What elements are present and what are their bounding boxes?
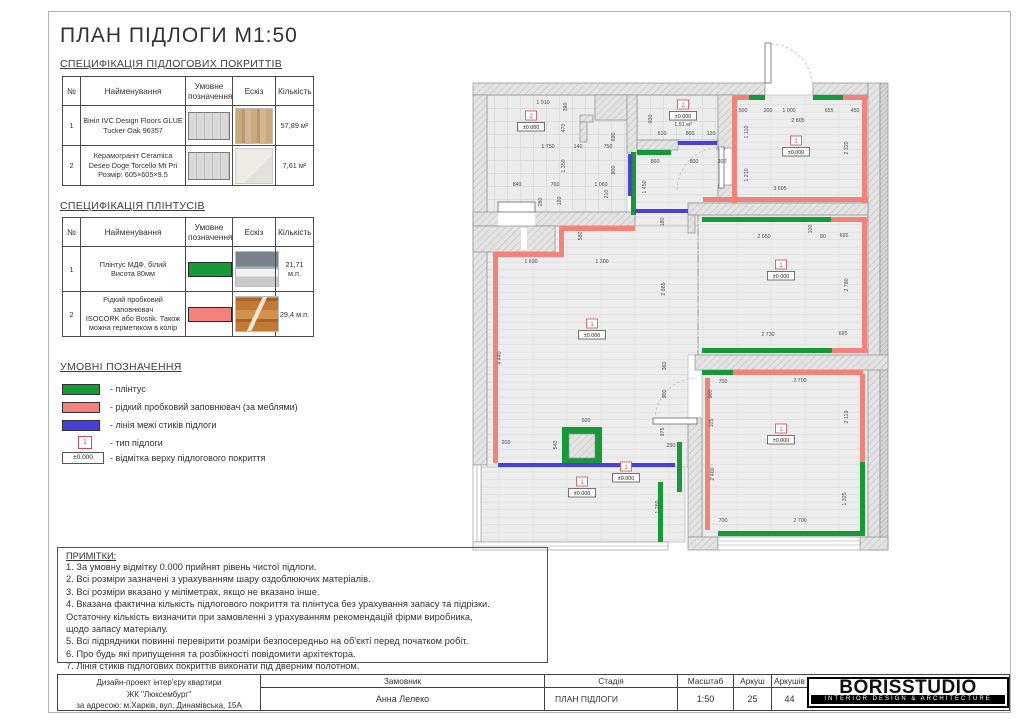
dim-label: 500 xyxy=(582,418,591,424)
elevation-value: ±0.000 xyxy=(618,476,634,482)
dim-label: 540 xyxy=(553,441,559,450)
dim-label: 1 450 xyxy=(642,180,648,193)
entry-door-leaf xyxy=(765,43,771,83)
note-line: 6. Про будь які припущення та розбіжност… xyxy=(66,648,539,660)
dim-label: 450 xyxy=(851,108,860,114)
legend-item-elevation: ±0.000 - відмітка верху підлогового покр… xyxy=(62,453,382,466)
dim-label: 610 xyxy=(658,131,667,137)
dim-label: 2 320 xyxy=(844,141,850,154)
spec-row: 1Вініл IVC Design Floors GLUE Tucker Oak… xyxy=(63,106,314,146)
entrance-door xyxy=(498,202,535,212)
dim-label: 100 xyxy=(808,225,814,234)
col-header: № xyxy=(63,77,81,106)
dim-label: 750 xyxy=(604,144,613,150)
dim-label: 1 260 xyxy=(655,500,661,513)
dim-label: 3 605 xyxy=(773,186,786,192)
col-header: Кількість xyxy=(276,218,314,247)
dim-label: 655 xyxy=(825,108,834,114)
legend-item-floor-type: 1 - тип підлоги xyxy=(62,438,382,451)
notes-lines: 1. За умовну відмітку 0.000 прийнят ріве… xyxy=(66,561,539,673)
dim-label: 1 300 xyxy=(595,259,608,265)
legend-heading: УМОВНІ ПОЗНАЧЕННЯ xyxy=(60,361,182,373)
logo-text: BORISSTUDIO xyxy=(809,679,1007,696)
dim-label: 2 700 xyxy=(793,518,806,524)
spec-row: 2Рідкий пробковий заповнювач ISOCORK або… xyxy=(63,292,314,337)
col-header: Кількість xyxy=(276,77,314,106)
dim-label: 80 xyxy=(820,234,826,240)
dim-label: 2 400 xyxy=(710,467,716,480)
dim-label: 930 xyxy=(648,115,654,124)
col-header: Найменування xyxy=(81,77,186,106)
client-label: Замовник xyxy=(261,675,544,688)
dim-label: 290 xyxy=(667,443,676,449)
dim-label: 700 xyxy=(719,518,728,524)
floor-areas xyxy=(481,95,868,542)
dim-label: 360 xyxy=(662,362,668,371)
legend-label: - відмітка верху підлогового покриття xyxy=(110,453,265,463)
dim-label: 2 805 xyxy=(791,118,804,124)
dim-label: 900 xyxy=(708,390,714,399)
dim-label: 1 060 xyxy=(594,182,607,188)
dim-label: 1 000 xyxy=(782,108,795,114)
dim-label: 800 xyxy=(611,166,617,175)
blue-joint-swatch xyxy=(62,420,100,431)
skirting-spec-table: №НайменуванняУмовне позначенняЕскізКільк… xyxy=(62,217,314,337)
floor-hatch-swatch xyxy=(188,152,230,180)
room-area-label: 1,51 м² xyxy=(674,122,692,128)
project-info: Дизайн-проект інтер'єру квартири ЖК "Люк… xyxy=(58,675,260,710)
spec-row: 1Плінтус МДФ, білий Висота 80мм21,71 м.п… xyxy=(63,247,314,292)
note-line: щодо запасу матеріалу. xyxy=(66,623,539,635)
note-line: 2. Всі розміри зазначені з урахуванням ш… xyxy=(66,573,539,585)
dim-label: 700 xyxy=(719,379,728,385)
scale-value: 1:50 xyxy=(678,688,733,710)
dim-label: 2 700 xyxy=(793,378,806,384)
dim-label: 210 xyxy=(604,190,610,199)
dim-label: 500 xyxy=(739,108,748,114)
logo-subtitle: INTERIOR DESIGN & ARCHITECTURE xyxy=(811,695,1005,704)
note-line: 3. Всі розміри вказано у міліметрах, якщ… xyxy=(66,586,539,598)
elevation-value: ±0.000 xyxy=(788,150,804,156)
dim-label: 105 xyxy=(709,419,715,428)
elevation-value: ±0.000 xyxy=(584,333,600,339)
floor-spec-heading: СПЕЦИФІКАЦІЯ ПІДЛОГОВИХ ПОКРИТТІВ xyxy=(60,58,282,70)
stage-label: Стадія xyxy=(545,675,677,688)
notes-heading: ПРИМІТКИ: xyxy=(66,551,539,561)
wood-sketch xyxy=(235,108,273,144)
elevation-value: ±0.000 xyxy=(675,114,691,120)
note-line: 4. Вказана фактична кількість підлоговог… xyxy=(66,598,539,610)
dim-label: 690 xyxy=(611,133,617,142)
dim-label: 975 xyxy=(660,428,666,437)
legend-label: - плінтус xyxy=(110,384,146,394)
col-header: № xyxy=(63,218,81,247)
pink-cork-swatch xyxy=(62,402,100,413)
dim-label: 860 xyxy=(651,159,660,165)
scale-label: Масштаб xyxy=(678,675,733,688)
dim-label: 300 xyxy=(718,159,727,165)
dim-label: 800 xyxy=(686,131,695,137)
legend-item-cork: - рідкий пробковий заповнювач (за меблям… xyxy=(62,402,382,415)
elevation-mark-swatch: ±0.000 xyxy=(62,452,104,464)
elevation-value: ±0.000 xyxy=(574,491,590,497)
note-line: 5. Всі підрядники повинні перевірити роз… xyxy=(66,635,539,647)
elevation-value: ±0.000 xyxy=(773,274,789,280)
client-cell: Замовник Анна Лелеко xyxy=(260,675,544,710)
elevation-value: ±0.000 xyxy=(523,125,539,131)
dim-label: 200 xyxy=(764,108,773,114)
page-title: ПЛАН ПІДЛОГИ М1:50 xyxy=(60,24,298,48)
sheet-cell: Аркуш 25 xyxy=(733,675,771,710)
dim-label: 695 xyxy=(840,233,849,239)
skirting-photo xyxy=(235,251,279,287)
dim-label: 760 xyxy=(551,182,560,188)
sheets-cell: Аркушів 44 xyxy=(771,675,807,710)
note-line: 7. Лінія стиків підлогових покриттів вик… xyxy=(66,660,539,672)
dim-label: 4 440 xyxy=(497,351,503,364)
dim-label: 1 210 xyxy=(744,168,750,181)
dim-label: 1 750 xyxy=(541,144,554,150)
note-line: Остаточну кількість визначити при замовл… xyxy=(66,611,539,623)
dim-label: 1 690 xyxy=(524,259,537,265)
dim-label: 580 xyxy=(578,232,584,241)
dim-label: 2 780 xyxy=(844,278,850,291)
dim-label: 1 910 xyxy=(536,100,549,106)
spec-row: 2Керамограніт Ceramica Deseo Doge Torcel… xyxy=(63,146,314,186)
dim-label: 840 xyxy=(513,182,522,188)
dim-label: 1 325 xyxy=(842,492,848,505)
tile-sketch xyxy=(235,148,273,184)
col-header: Умовне позначення xyxy=(186,77,233,106)
dim-label: 2 119 xyxy=(844,411,850,424)
dim-label: 180 xyxy=(660,218,666,227)
skirting-spec-heading: СПЕЦИФІКАЦІЯ ПЛІНТУСІВ xyxy=(60,200,205,212)
sheet-value: 25 xyxy=(734,688,771,710)
dim-label: 120 xyxy=(557,197,563,206)
scale-cell: Масштаб 1:50 xyxy=(677,675,733,710)
pink-bar xyxy=(188,307,232,322)
column xyxy=(562,427,602,465)
col-header: Ескіз xyxy=(233,218,276,247)
floor-type-marker-swatch: 1 xyxy=(78,436,92,449)
floor-hatch-swatch xyxy=(188,112,230,140)
stage-cell: Стадія ПЛАН ПІДЛОГИ xyxy=(544,675,677,710)
dim-label: 1 110 xyxy=(744,126,750,139)
cork-photo xyxy=(235,296,279,332)
dim-label: 120 xyxy=(707,131,716,137)
notes-box: ПРИМІТКИ: 1. За умовну відмітку 0.000 пр… xyxy=(57,547,548,663)
dim-label: 695 xyxy=(839,331,848,337)
sheets-label: Аркушів xyxy=(772,675,807,688)
dim-label: 1 350 xyxy=(561,159,567,172)
sheet-label: Аркуш xyxy=(734,675,771,688)
dim-label: 280 xyxy=(538,198,544,207)
note-line: 1. За умовну відмітку 0.000 прийнят ріве… xyxy=(66,561,539,573)
green-bar xyxy=(188,262,232,277)
floor-spec-table: №НайменуванняУмовне позначенняЕскізКільк… xyxy=(62,76,314,186)
dim-label: 800 xyxy=(690,159,699,165)
dim-label: 200 xyxy=(502,440,511,446)
dim-label: 2 885 xyxy=(661,282,667,295)
dim-label: 390 xyxy=(563,103,569,112)
dim-label: 2 730 xyxy=(761,332,774,338)
client-value: Анна Лелеко xyxy=(261,688,544,710)
legend-item-joint: - лінія межі стиків підлоги xyxy=(62,420,382,433)
elevation-value: ±0.000 xyxy=(773,438,789,444)
legend-label: - лінія межі стиків підлоги xyxy=(110,420,216,430)
legend-item-skirting: - плінтус xyxy=(62,384,382,397)
dim-label: 900 xyxy=(662,390,668,399)
legend-label: - тип підлоги xyxy=(110,438,163,448)
stage-value: ПЛАН ПІДЛОГИ xyxy=(545,688,677,710)
col-header: Умовне позначення xyxy=(186,218,233,247)
dim-label: 140 xyxy=(574,144,583,150)
floor-plan-drawing: 1 9103904701 7501407506901 3508008407601… xyxy=(455,30,925,570)
dim-label: 470 xyxy=(561,124,567,133)
title-block: Дизайн-проект інтер'єру квартири ЖК "Люк… xyxy=(57,674,1010,711)
legend-label: - рідкий пробковий заповнювач (за меблям… xyxy=(110,402,298,412)
green-skirting-swatch xyxy=(62,384,100,395)
studio-logo: BORISSTUDIO INTERIOR DESIGN & ARCHITECTU… xyxy=(807,677,1009,708)
col-header: Ескіз xyxy=(233,77,276,106)
dim-label: 2 650 xyxy=(757,234,770,240)
col-header: Найменування xyxy=(81,218,186,247)
sheets-value: 44 xyxy=(772,688,807,710)
